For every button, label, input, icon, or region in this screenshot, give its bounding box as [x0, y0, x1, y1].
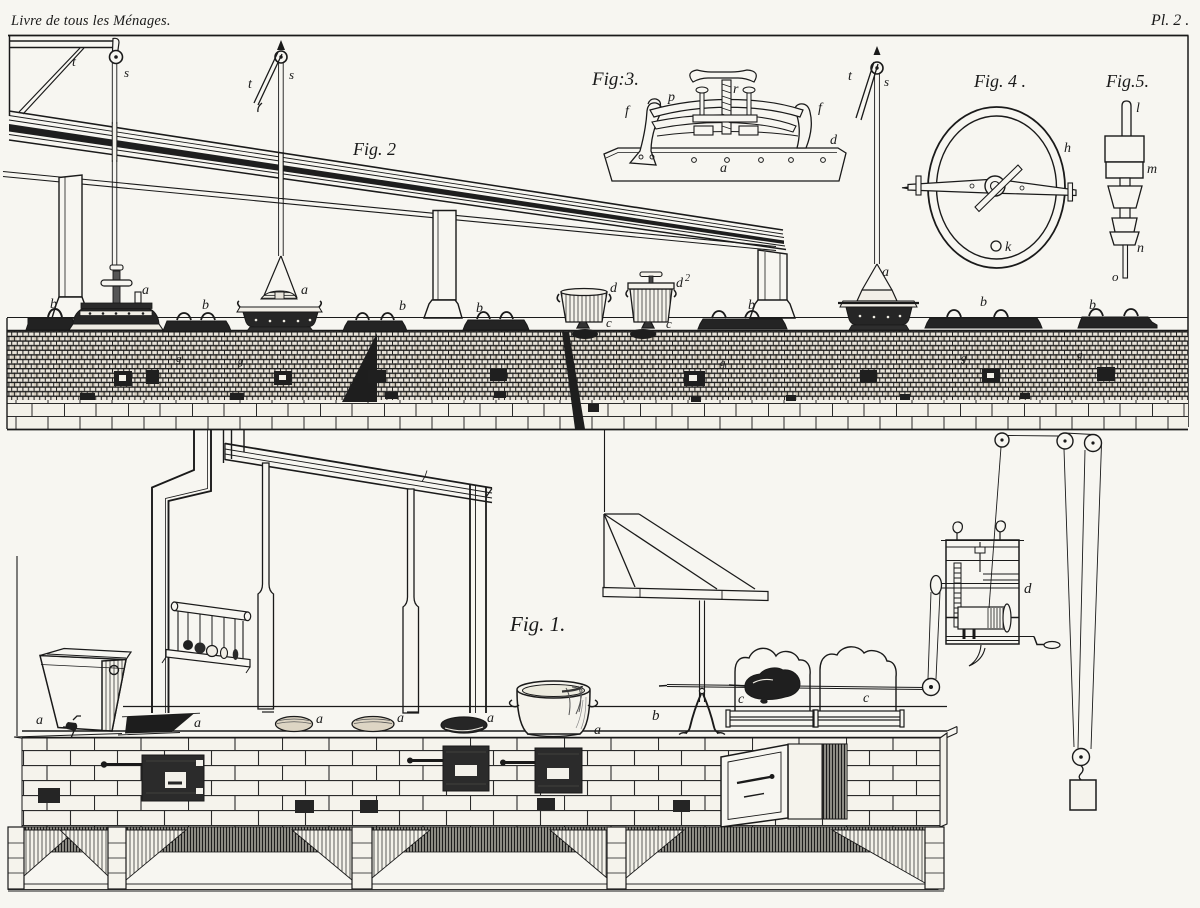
svg-text:a: a — [142, 283, 149, 298]
svg-text:a: a — [301, 283, 308, 298]
svg-text:b: b — [1089, 298, 1096, 313]
svg-text:s: s — [884, 74, 889, 89]
svg-text:s: s — [289, 67, 294, 82]
svg-text:Pl. 2 .: Pl. 2 . — [1150, 12, 1189, 29]
svg-text:b: b — [748, 298, 755, 313]
svg-text:n: n — [1137, 241, 1144, 256]
svg-text:l: l — [1136, 101, 1140, 116]
svg-text:b: b — [50, 297, 57, 312]
svg-text:d: d — [610, 281, 618, 296]
svg-text:p: p — [667, 90, 675, 105]
svg-text:c: c — [666, 316, 672, 331]
svg-text:b: b — [399, 299, 406, 314]
svg-text:d: d — [676, 276, 684, 291]
svg-text:k: k — [1005, 240, 1012, 255]
svg-text:a: a — [397, 711, 404, 726]
svg-text:c: c — [606, 315, 612, 330]
svg-text:b: b — [476, 301, 483, 316]
svg-text:Fig. 4 .: Fig. 4 . — [973, 71, 1026, 91]
svg-text:a: a — [594, 723, 601, 738]
svg-text:a: a — [487, 711, 494, 726]
svg-text:g: g — [1077, 349, 1083, 361]
svg-text:Fig. 2: Fig. 2 — [352, 139, 396, 159]
svg-text:b: b — [202, 298, 209, 313]
svg-text:a: a — [882, 265, 889, 280]
svg-text:Livre de tous les Ménages.: Livre de tous les Ménages. — [10, 13, 171, 29]
svg-text:m: m — [1147, 162, 1157, 177]
svg-text:o: o — [1112, 269, 1119, 284]
svg-text:c: c — [738, 692, 745, 707]
svg-text:a: a — [720, 161, 727, 176]
svg-text:b: b — [652, 708, 660, 724]
svg-text:r: r — [733, 82, 739, 97]
svg-text:g: g — [238, 355, 244, 367]
svg-text:Fig.5.: Fig.5. — [1105, 71, 1149, 91]
svg-text:g: g — [720, 357, 726, 369]
svg-text:Fig:3.: Fig:3. — [591, 69, 639, 90]
svg-text:d: d — [1024, 581, 1032, 597]
svg-text:s: s — [124, 65, 129, 80]
svg-text:c: c — [863, 691, 870, 706]
svg-text:Fig. 1.: Fig. 1. — [509, 612, 565, 636]
svg-text:b: b — [980, 295, 987, 310]
svg-text:d: d — [830, 133, 838, 148]
svg-text:g: g — [176, 353, 182, 365]
svg-text:a: a — [194, 716, 201, 731]
svg-text:h: h — [1064, 141, 1071, 156]
svg-text:a: a — [36, 713, 43, 728]
svg-text:g: g — [961, 352, 967, 364]
svg-text:a: a — [316, 712, 323, 727]
svg-text:2: 2 — [685, 273, 690, 284]
